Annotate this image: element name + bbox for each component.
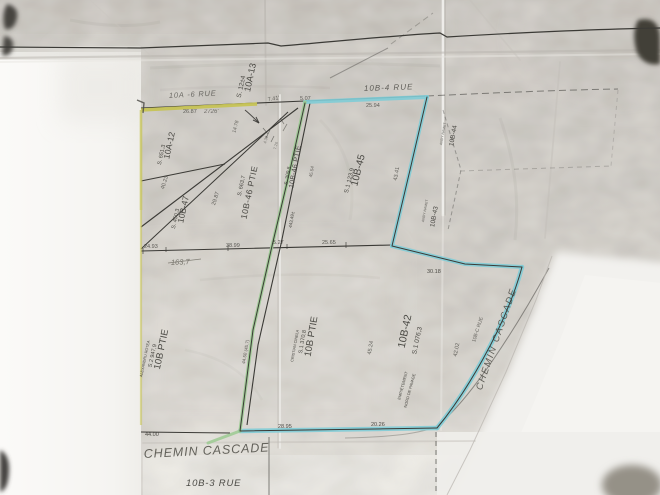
svg-text:2726': 2726' [203, 109, 219, 115]
svg-text:10B-3 RUE: 10B-3 RUE [186, 478, 241, 489]
svg-text:44.00: 44.00 [145, 432, 159, 438]
svg-text:5.27: 5.27 [273, 240, 284, 246]
svg-text:5.07: 5.07 [300, 96, 311, 102]
svg-text:25.65: 25.65 [322, 240, 336, 246]
svg-text:30.18: 30.18 [427, 269, 441, 275]
svg-text:38.99: 38.99 [226, 243, 240, 249]
svg-text:24.93: 24.93 [144, 244, 158, 250]
svg-text:28.95: 28.95 [278, 424, 292, 430]
svg-text:25.94: 25.94 [366, 103, 380, 109]
svg-text:26.87: 26.87 [183, 109, 197, 115]
svg-text:10B-4 RUE: 10B-4 RUE [364, 82, 414, 93]
svg-text:20.26: 20.26 [371, 422, 385, 428]
